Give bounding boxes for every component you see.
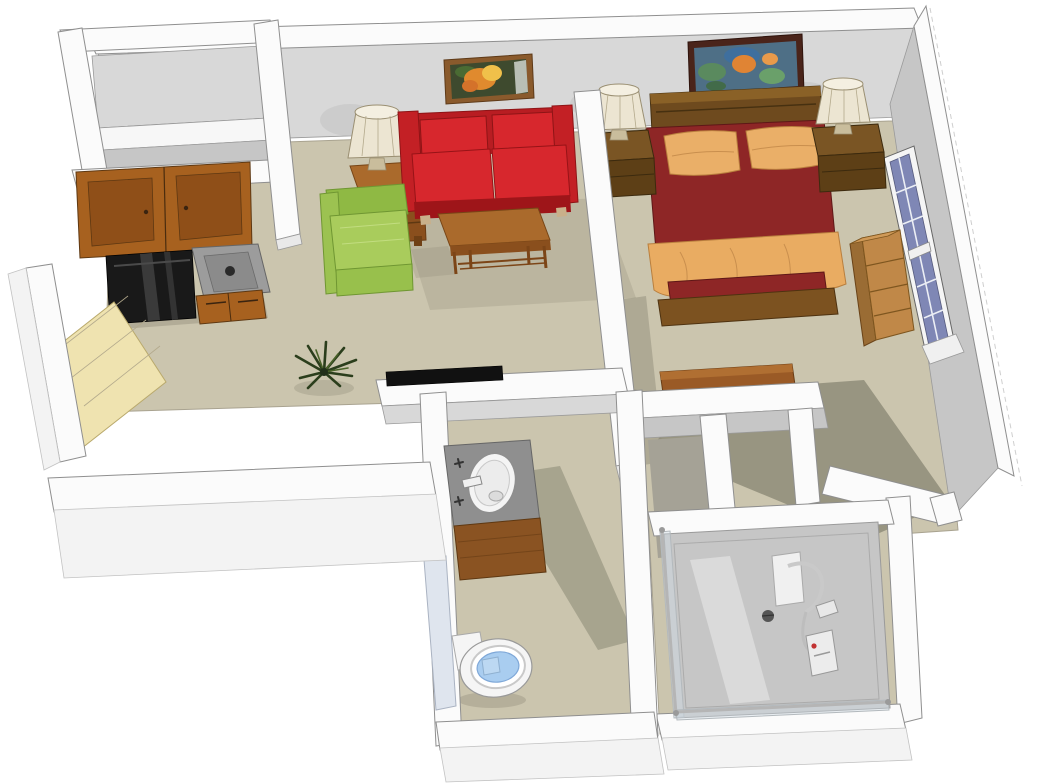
kitchen (76, 162, 270, 324)
sink-drain (225, 266, 235, 276)
shower-control-box (806, 630, 838, 676)
pillow-right (746, 127, 824, 170)
fixture-mount-panel (772, 552, 804, 606)
floor-plan-canvas (0, 0, 1048, 783)
cabinet-knob (144, 210, 148, 214)
lamp-shade-top (823, 78, 863, 90)
sofa-seat-cushion (412, 149, 494, 206)
painting-flower (482, 65, 502, 81)
floor-plan-render (0, 0, 1048, 783)
lamp-shade-top (599, 84, 639, 96)
armchair-front (336, 264, 413, 296)
sofa-seat-cushion (492, 145, 570, 201)
shadow-plant (294, 380, 354, 396)
painting-flower (462, 80, 478, 92)
lamp-base (368, 158, 386, 170)
toilet-bowl-detail (482, 657, 500, 675)
lamp-shade-top (355, 105, 399, 119)
plant-center (320, 368, 328, 376)
painting-bloom (762, 53, 778, 65)
shower-pan (664, 522, 890, 718)
glass-corner-post (673, 710, 679, 716)
sink-drain (489, 491, 503, 501)
closet-interior-face (92, 46, 268, 128)
side-table-leg (414, 236, 422, 246)
painting-swirl (759, 68, 785, 84)
sofa-foot (420, 215, 431, 225)
glass-corner-post (885, 699, 891, 705)
cabinet-knob (184, 206, 188, 210)
painting-swirl (698, 63, 726, 81)
coffee-table-top (438, 208, 550, 246)
lamp-base (610, 130, 628, 140)
vanity-wood-panel (454, 518, 546, 580)
vanity-sink (444, 440, 546, 580)
lamp-base (834, 124, 852, 134)
painting-bloom (732, 55, 756, 73)
pillow-left (664, 131, 740, 176)
armchair-seat (330, 210, 412, 272)
green-armchair (320, 184, 413, 296)
painting-swirl (706, 81, 726, 91)
control-red-dot (811, 643, 816, 648)
glass-corner-post (659, 527, 665, 533)
flower-painting (444, 54, 534, 104)
painting-light-area (514, 60, 528, 94)
shower-stall (648, 500, 894, 720)
red-loveseat (398, 105, 578, 225)
sofa-foot (556, 207, 567, 217)
